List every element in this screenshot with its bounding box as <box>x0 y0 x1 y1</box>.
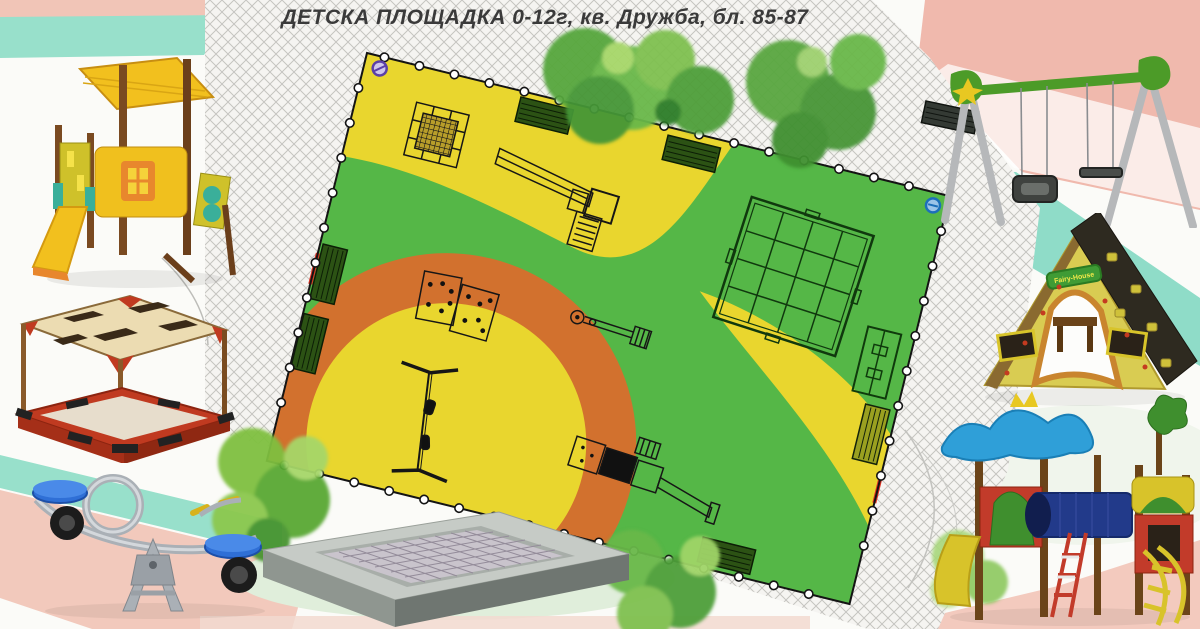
page-title: ДЕТСКА ПЛОЩАДКА 0-12г, кв. Дружба, бл. 8… <box>200 6 890 30</box>
render-covered-sandbox <box>8 288 238 463</box>
render-inground-trampoline <box>243 494 645 629</box>
render-fairy-house: Fairy-House <box>955 213 1200 411</box>
render-play-complex <box>920 385 1200 629</box>
render-double-swing-set <box>925 2 1200 228</box>
render-play-tower-with-slide <box>25 55 237 290</box>
render-spring-seesaw <box>5 443 280 625</box>
stripe-teal-top-left <box>0 15 230 58</box>
playground-design-poster: { "title": "ДЕТСКА ПЛОЩАДКА 0-12г, кв. Д… <box>0 0 1200 629</box>
